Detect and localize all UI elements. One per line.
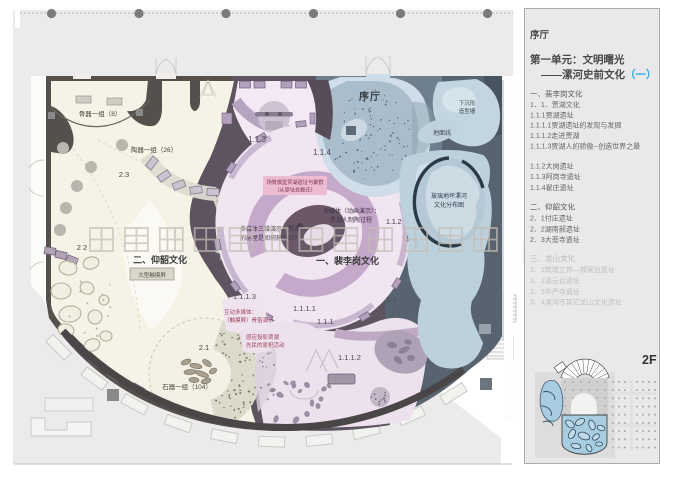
svg-text:1.1: 1.1 bbox=[386, 295, 396, 304]
svg-text:2．3大悲寺遗址: 2．3大悲寺遗址 bbox=[530, 235, 580, 244]
svg-text:贾湖人制陶过程: 贾湖人制陶过程 bbox=[330, 216, 372, 224]
svg-text:3．2凌云台遗址: 3．2凌云台遗址 bbox=[530, 276, 580, 285]
svg-text:造型墙: 造型墙 bbox=[459, 107, 476, 115]
svg-text:多媒体三维演示：贾湖人: 多媒体三维演示：贾湖人 bbox=[240, 225, 306, 233]
svg-text:第一单元：文明曙光: 第一单元：文明曙光 bbox=[530, 53, 625, 66]
svg-text:文化分布图: 文化分布图 bbox=[434, 201, 464, 209]
svg-text:先民的原祀活动: 先民的原祀活动 bbox=[246, 341, 285, 349]
svg-text:1.1.1.3贾湖人的骄傲--创造世界之最: 1.1.1.3贾湖人的骄傲--创造世界之最 bbox=[530, 142, 640, 151]
svg-text:1.1.3: 1.1.3 bbox=[248, 135, 266, 144]
svg-text:下沉形: 下沉形 bbox=[459, 99, 476, 107]
svg-text:二、仰韶文化: 二、仰韶文化 bbox=[530, 202, 575, 212]
svg-text:1.1.1: 1.1.1 bbox=[317, 317, 334, 326]
svg-text:序厅: 序厅 bbox=[359, 90, 381, 103]
svg-text:骨器一组（8）: 骨器一组（8） bbox=[79, 109, 122, 118]
svg-text:2．2湖南郝遗址: 2．2湖南郝遗址 bbox=[530, 225, 580, 234]
svg-text:一、裴李岗文化: 一、裴李岗文化 bbox=[316, 255, 379, 266]
svg-text:1.1.1.2走进贾湖: 1.1.1.2走进贾湖 bbox=[530, 131, 579, 140]
svg-text:3．3华严寺遗址: 3．3华严寺遗址 bbox=[530, 287, 580, 296]
svg-text:序厅: 序厅 bbox=[530, 29, 550, 41]
svg-text:二、仰韶文化: 二、仰韶文化 bbox=[133, 254, 187, 265]
svg-text:3．4漯河市其它龙山文化遗址: 3．4漯河市其它龙山文化遗址 bbox=[530, 298, 622, 307]
svg-text:1.1.2: 1.1.2 bbox=[386, 219, 402, 226]
svg-text:2．1付庄遗址: 2．1付庄遗址 bbox=[530, 214, 573, 223]
svg-text:1.1.1.2: 1.1.1.2 bbox=[338, 353, 361, 362]
svg-text:互动多媒体：: 互动多媒体： bbox=[224, 308, 257, 316]
svg-text:三、龙山文化: 三、龙山文化 bbox=[530, 253, 575, 263]
svg-text:（从原址处搬迁）: （从原址处搬迁） bbox=[274, 186, 316, 194]
svg-text:2.1: 2.1 bbox=[199, 343, 209, 352]
svg-text:1.1.4: 1.1.4 bbox=[313, 148, 331, 157]
svg-text:2F: 2F bbox=[642, 353, 657, 367]
svg-text:（触摸屏）骨笛演示: （触摸屏）骨笛演示 bbox=[224, 316, 274, 324]
svg-text:1.1.2大岗遗址: 1.1.2大岗遗址 bbox=[530, 162, 574, 171]
svg-text:玻璃地坪漯河: 玻璃地坪漯河 bbox=[431, 192, 467, 200]
svg-text:场景模型贾湖遗址与聚群: 场景模型贾湖遗址与聚群 bbox=[266, 178, 323, 186]
svg-text:大型触摸屏: 大型触摸屏 bbox=[138, 271, 166, 279]
svg-text:1.1.1贾湖遗址: 1.1.1贾湖遗址 bbox=[530, 111, 574, 120]
svg-text:感应投影贾湖: 感应投影贾湖 bbox=[246, 333, 280, 341]
svg-text:1.1.4翟庄遗址: 1.1.4翟庄遗址 bbox=[530, 183, 574, 192]
svg-text:2.3: 2.3 bbox=[119, 170, 129, 179]
svg-text:地面线: 地面线 bbox=[433, 129, 451, 137]
svg-text:石器一组（104）: 石器一组（104） bbox=[162, 382, 212, 391]
svg-text:1．1．贾湖文化: 1．1．贾湖文化 bbox=[530, 100, 580, 109]
svg-text:一、裴李岗文化: 一、裴李岗文化 bbox=[530, 89, 583, 99]
svg-text:1.1.3阿岗寺遗址: 1.1.3阿岗寺遗址 bbox=[530, 172, 581, 181]
svg-text:1.1.1.1: 1.1.1.1 bbox=[293, 304, 316, 313]
svg-text:1.1.1.3: 1.1.1.3 bbox=[233, 292, 256, 301]
svg-text:——漯河史前文化（一）: ——漯河史前文化（一） bbox=[541, 68, 657, 81]
svg-text:多媒体（动画演示）：: 多媒体（动画演示）： bbox=[323, 207, 380, 215]
svg-text:陶器一组（26）: 陶器一组（26） bbox=[131, 145, 177, 154]
svg-text:2 2: 2 2 bbox=[77, 243, 87, 252]
svg-text:3．1筑城立邦—郝家台遗址: 3．1筑城立邦—郝家台遗址 bbox=[530, 265, 615, 274]
svg-text:1.1.1.1贾湖遗址的发现与发掘: 1.1.1.1贾湖遗址的发现与发掘 bbox=[530, 121, 621, 130]
